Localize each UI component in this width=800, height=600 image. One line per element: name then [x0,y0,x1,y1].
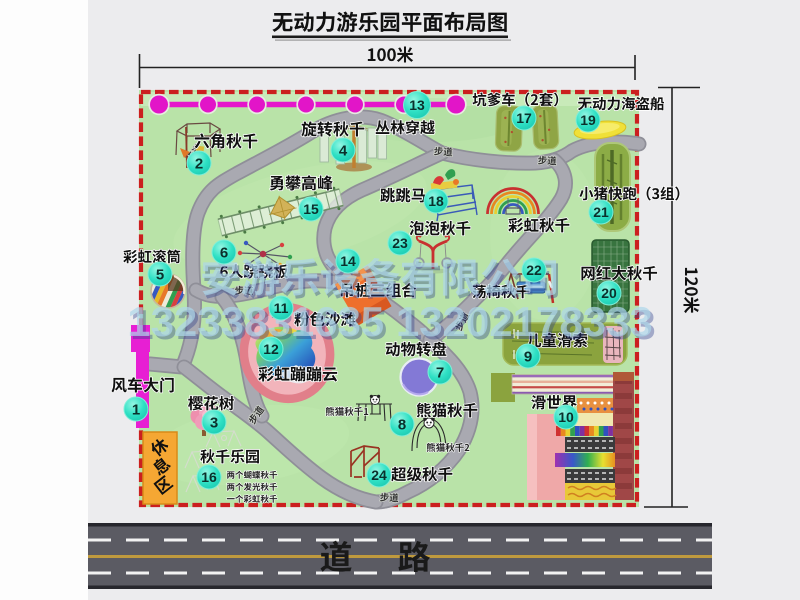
svg-text:11: 11 [274,300,289,316]
svg-text:13233831635 13202178333: 13233831635 13202178333 [127,298,653,345]
svg-text:6: 6 [220,244,228,261]
svg-text:8: 8 [398,416,406,433]
svg-text:21: 21 [593,204,609,220]
svg-text:18: 18 [428,193,444,209]
svg-text:12: 12 [263,341,279,357]
svg-text:5: 5 [156,266,164,283]
svg-text:19: 19 [580,112,596,128]
svg-text:17: 17 [516,110,532,126]
svg-text:3: 3 [210,414,218,431]
svg-text:14: 14 [340,253,356,269]
svg-text:23: 23 [392,235,408,251]
svg-text:13: 13 [409,97,425,113]
svg-text:1: 1 [132,401,140,418]
svg-text:7: 7 [436,364,444,381]
svg-text:16: 16 [201,469,217,485]
svg-text:9: 9 [524,348,532,365]
svg-text:2: 2 [195,155,203,172]
svg-text:22: 22 [526,262,542,278]
svg-text:20: 20 [601,285,617,301]
svg-text:24: 24 [371,467,387,483]
svg-text:15: 15 [303,201,319,217]
svg-text:10: 10 [558,409,574,425]
svg-text:4: 4 [339,142,348,159]
